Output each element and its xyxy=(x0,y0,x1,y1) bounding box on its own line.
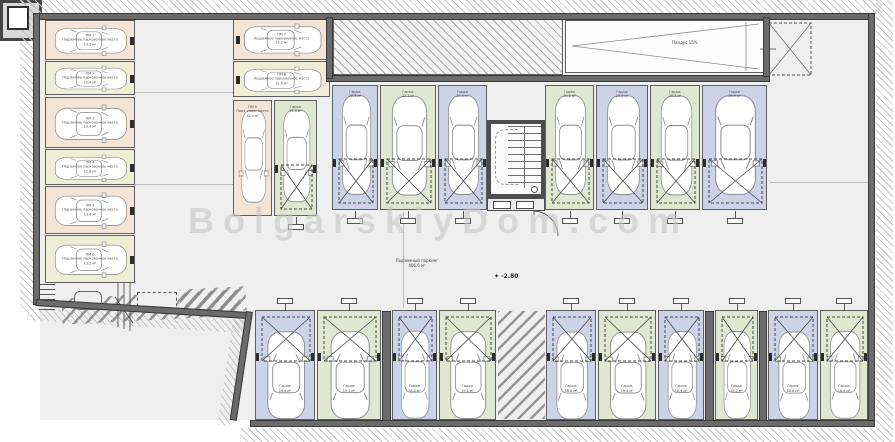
door-swing xyxy=(664,316,700,362)
spot-L1: ПМ 1Подземное парковочное место13.2 м² xyxy=(45,20,135,60)
level-mark-icon: ✦ xyxy=(494,273,499,280)
spot-U6: Гараж20.3 м² xyxy=(650,85,700,210)
spot-label: Гараж18.8 м² xyxy=(769,384,817,393)
wall-bottom xyxy=(250,420,875,427)
door-hinge-icon xyxy=(432,159,435,167)
door-hinge-icon xyxy=(546,159,549,167)
door-hinge-icon xyxy=(644,159,647,167)
wall-block-left xyxy=(326,17,333,79)
hatched-service-block xyxy=(333,17,563,75)
spot-U7: Гараж26.9 м² xyxy=(702,85,767,210)
earth-hatch-bottom xyxy=(240,428,893,442)
spot-label: ПМ 8Подземное парковочное место12.8 м² xyxy=(234,72,329,85)
door-sill xyxy=(468,304,469,310)
spot-B6: Гараж19.4 м² xyxy=(598,310,656,420)
spot-L5: ПМ 5Подземное парковочное место13.4 м² xyxy=(45,186,135,234)
door-swing xyxy=(551,158,590,204)
door-swing xyxy=(445,316,492,362)
stair-walkline xyxy=(495,129,519,185)
door-hinge-icon xyxy=(652,353,655,361)
wall-bottom-divider2 xyxy=(705,311,714,421)
door-hinge-icon xyxy=(769,353,772,361)
level-mark-value: -2.80 xyxy=(501,273,518,280)
hall-label-line2: 406.6 м² xyxy=(372,263,462,268)
door-hinge-icon xyxy=(763,159,766,167)
spot-label: Гараж18.6 м² xyxy=(547,384,595,393)
door-hinge-icon xyxy=(814,353,817,361)
spot-U4: Гараж20.1 м² xyxy=(545,85,594,210)
door-swing xyxy=(444,158,483,204)
spot-label: Гараж20.5 м² xyxy=(439,90,486,99)
door-sill xyxy=(727,218,743,224)
dimension-tick xyxy=(130,120,134,128)
earth-hatch-left xyxy=(20,0,34,312)
door-hinge-icon xyxy=(333,159,336,167)
door-sill xyxy=(285,304,286,310)
spot-B1: Гараж18.6 м² xyxy=(255,310,315,420)
door-hinge-icon xyxy=(256,353,259,361)
door-swing xyxy=(708,158,763,204)
spot-label: ПМ 6Подземное парковочное место13.2 м² xyxy=(46,252,134,265)
door-swing xyxy=(398,316,433,362)
door-hinge-icon xyxy=(439,159,442,167)
elevator-cab xyxy=(7,6,29,30)
spot-label: ПМ 7Подземное парковочное место13.2 м² xyxy=(234,32,329,45)
door-sill xyxy=(737,304,738,310)
watermark: BolgarskiyDom.com xyxy=(188,200,689,242)
spot-B8: Гараж18.2 м² xyxy=(715,310,758,420)
door-swing xyxy=(826,316,864,362)
earth-hatch-right xyxy=(876,0,893,442)
door-hinge-icon xyxy=(313,165,316,173)
spot-label: Гараж20.3 м² xyxy=(333,90,377,99)
spot-L2: ПМ 2Подземное парковочное место12.8 м² xyxy=(45,61,135,95)
spot-B3: Гараж18.4 м² xyxy=(392,310,437,420)
floor-plan: Пандус 15% xyxy=(0,0,895,442)
door-sill xyxy=(571,304,572,310)
door-swing xyxy=(721,316,754,362)
spot-B5: Гараж18.6 м² xyxy=(546,310,596,420)
door-hinge-icon xyxy=(700,353,703,361)
wall-bottom-divider1 xyxy=(382,311,391,421)
door-hinge-icon xyxy=(597,159,600,167)
spot-label: ПМ 4Подземное парковочное место12.8 м² xyxy=(46,160,134,173)
spot-U5: Гараж20.9 м² xyxy=(596,85,648,210)
dimension-tick xyxy=(130,75,134,83)
door-hinge-icon xyxy=(821,353,824,361)
door-hinge-icon xyxy=(703,159,706,167)
spot-L3: ПМ 3Подземное парковочное место13.4 м² xyxy=(45,97,135,148)
door-hinge-icon xyxy=(311,353,314,361)
spot-U3: Гараж20.5 м² xyxy=(438,85,487,210)
spot-label: Гараж26.9 м² xyxy=(703,90,766,99)
spot-L4: ПМ 4Подземное парковочное место12.8 м² xyxy=(45,149,135,185)
hall-label: Подземный паркинг 406.6 м² xyxy=(372,258,462,268)
dimension-tick xyxy=(130,164,134,172)
spot-label: Гараж18.2 м² xyxy=(716,384,757,393)
car-icon xyxy=(239,107,268,204)
door-swing xyxy=(604,316,652,362)
spot-label: ПМ 3Подземное парковочное место13.4 м² xyxy=(46,116,134,129)
door-hinge-icon xyxy=(275,165,278,173)
ramp-label: Пандус 15% xyxy=(672,40,698,45)
spot-B4: Гараж19.1 м² xyxy=(439,310,496,420)
spot-C: ПМ 9Подз. парк. место13.4 м² xyxy=(233,100,272,216)
stair-mark xyxy=(531,186,538,193)
door-sill xyxy=(844,304,845,310)
door-sill xyxy=(415,304,416,310)
spot-label: Гараж20.9 м² xyxy=(597,90,647,99)
door-swing xyxy=(656,158,696,204)
door-hinge-icon xyxy=(374,159,377,167)
spot-label: Гараж20.1 м² xyxy=(546,90,593,99)
spot-L6: ПМ 6Подземное парковочное место13.2 м² xyxy=(45,235,135,283)
door-hinge-icon xyxy=(696,159,699,167)
spot-B10: Гараж18.6 м² xyxy=(820,310,868,420)
spot-label: ПМ 5Подземное парковочное место13.4 м² xyxy=(46,203,134,216)
spot-label: Гараж18.4 м² xyxy=(659,384,703,393)
spot-U2: Гараж22.1 м² xyxy=(380,85,436,210)
door-hinge-icon xyxy=(381,159,384,167)
stairwell xyxy=(487,120,545,198)
door-swing xyxy=(338,158,374,204)
door-hinge-icon xyxy=(651,159,654,167)
spot-A: ПМ 7Подземное парковочное место13.2 м² xyxy=(233,17,330,60)
spot-label: ПМ 9Подз. парк. место13.4 м² xyxy=(234,105,271,118)
spot-D: Гараж13.4 м² xyxy=(274,100,317,216)
spot-label: ПМ 2Подземное парковочное место12.8 м² xyxy=(46,71,134,84)
earth-hatch-top xyxy=(20,0,882,14)
door-sill xyxy=(793,304,794,310)
spot-label: Гараж18.6 м² xyxy=(256,384,314,393)
door-swing xyxy=(774,316,814,362)
door-hinge-icon xyxy=(716,353,719,361)
door-hinge-icon xyxy=(659,353,662,361)
spot-B7: Гараж18.4 м² xyxy=(658,310,704,420)
door-hinge-icon xyxy=(393,353,396,361)
spot-label: ПМ 1Подземное парковочное место13.2 м² xyxy=(46,33,134,46)
spot-label: Гараж18.6 м² xyxy=(821,384,867,393)
floor-joint xyxy=(770,182,868,183)
spot-label: Гараж19.4 м² xyxy=(599,384,655,393)
door-sill xyxy=(735,211,736,218)
vehicle-ramp xyxy=(565,20,765,73)
spot-label: Гараж19.7 м² xyxy=(318,384,380,393)
dimension-tick xyxy=(130,37,134,45)
door-hinge-icon xyxy=(592,353,595,361)
spot-B9: Гараж18.8 м² xyxy=(768,310,818,420)
door-swing xyxy=(261,316,311,362)
door-hinge-icon xyxy=(492,353,495,361)
door-hinge-icon xyxy=(483,159,486,167)
door-hinge-icon xyxy=(377,353,380,361)
wall-bottom-divider3 xyxy=(759,311,767,421)
dimension-tick xyxy=(130,256,134,264)
dimension-tick xyxy=(130,207,134,215)
spot-B2: Гараж19.7 м² xyxy=(317,310,381,420)
door-hinge-icon xyxy=(547,353,550,361)
stair-center-rail xyxy=(524,126,525,188)
door-hinge-icon xyxy=(433,353,436,361)
door-swing xyxy=(602,158,644,204)
door-hinge-icon xyxy=(864,353,867,361)
spot-label: Гараж19.1 м² xyxy=(440,384,495,393)
dimension-tick xyxy=(236,76,240,84)
spot-label: Гараж22.1 м² xyxy=(381,90,435,99)
door-hinge-icon xyxy=(318,353,321,361)
door-sill xyxy=(349,304,350,310)
door-hinge-icon xyxy=(590,159,593,167)
door-hinge-icon xyxy=(440,353,443,361)
spot-label: Гараж18.4 м² xyxy=(393,384,436,393)
door-sill xyxy=(681,304,682,310)
spot-label: Гараж13.4 м² xyxy=(275,105,316,114)
wall-left xyxy=(33,13,40,305)
wall-top xyxy=(33,13,875,20)
ramp-chevrons-strip xyxy=(498,311,545,419)
door-sill xyxy=(627,304,628,310)
wall-ramp-right xyxy=(763,17,770,77)
spot-B: ПМ 8Подземное парковочное место12.8 м² xyxy=(233,61,330,97)
door-hinge-icon xyxy=(754,353,757,361)
entry-gate-box xyxy=(768,22,812,76)
wall-under-ramp xyxy=(326,75,770,82)
door-swing xyxy=(552,316,592,362)
wall-right xyxy=(868,13,875,427)
door-hinge-icon xyxy=(599,353,602,361)
spot-U1: Гараж20.3 м² xyxy=(332,85,378,210)
door-swing xyxy=(386,158,432,204)
spot-label: Гараж20.3 м² xyxy=(651,90,699,99)
dimension-tick xyxy=(236,36,240,44)
level-mark: ✦ -2.80 xyxy=(494,273,518,280)
door-swing xyxy=(323,316,377,362)
